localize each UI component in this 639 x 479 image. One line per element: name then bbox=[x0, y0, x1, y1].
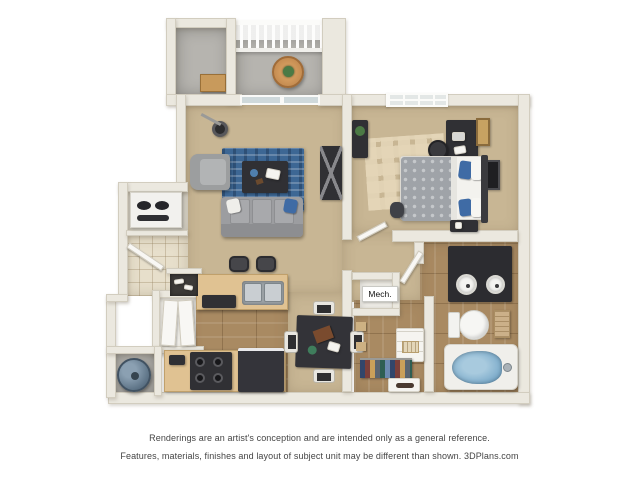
bar-stool bbox=[256, 256, 276, 272]
towel-basket bbox=[494, 310, 510, 338]
toilet bbox=[448, 310, 490, 340]
wall-bath-closet-divider bbox=[424, 296, 434, 392]
closet-hanging-clothes bbox=[360, 358, 412, 378]
dining-napkin bbox=[327, 341, 341, 353]
wall-balcony-right-column bbox=[322, 18, 346, 104]
pantry-door-panel bbox=[160, 300, 178, 347]
coffee-table-tray bbox=[265, 168, 281, 181]
wall-wing-left bbox=[118, 182, 128, 300]
sofa-pillow-blue bbox=[283, 198, 298, 214]
nightstand bbox=[450, 220, 478, 232]
wall-wing-top bbox=[118, 182, 188, 192]
wall-laundry-entry-divider bbox=[126, 230, 188, 236]
washer-dryer bbox=[130, 192, 182, 228]
bathtub bbox=[444, 344, 518, 390]
bathtub-basin bbox=[452, 351, 502, 384]
wall-living-left bbox=[176, 94, 186, 192]
closet-wall-box bbox=[356, 322, 366, 331]
closet-basket bbox=[402, 341, 419, 353]
closet-shelf-unit bbox=[396, 328, 424, 362]
wall-bottom-outer bbox=[108, 392, 530, 404]
sofa bbox=[221, 197, 303, 237]
kitchen-sink bbox=[242, 281, 284, 305]
washer-drum bbox=[155, 201, 169, 210]
toilet-bowl bbox=[459, 310, 489, 340]
coffee-table-decor bbox=[255, 178, 263, 185]
dishwasher bbox=[202, 295, 236, 308]
headboard bbox=[481, 155, 488, 223]
coffee-table-bowl bbox=[250, 169, 258, 177]
bathroom-vanity bbox=[448, 246, 512, 302]
bar-stool bbox=[229, 256, 249, 272]
dining-chair-seat bbox=[317, 373, 331, 381]
dining-chair-seat bbox=[288, 335, 296, 349]
disclaimer-line-2: Features, materials, finishes and layout… bbox=[0, 447, 639, 465]
tv-console bbox=[320, 146, 342, 200]
disclaimer-text: Renderings are an artist's conception an… bbox=[0, 429, 639, 465]
dining-chair bbox=[284, 331, 298, 353]
storage-box bbox=[200, 74, 226, 92]
wall-living-bedroom-partition bbox=[342, 94, 352, 240]
wall-water-heater-right bbox=[154, 346, 162, 396]
wall-storage-balcony-divider bbox=[226, 18, 236, 104]
nightstand-item bbox=[455, 222, 462, 229]
wall-right-outer bbox=[518, 94, 530, 404]
sliding-glass-door bbox=[240, 95, 320, 105]
dining-chair-seat bbox=[317, 305, 331, 313]
bathtub-faucet bbox=[503, 363, 512, 372]
bedroom-art-frame bbox=[486, 160, 500, 190]
refrigerator bbox=[238, 348, 284, 392]
sink-basin bbox=[244, 283, 262, 302]
floorplan-rendering: Mech. Renderings are an artist's concept… bbox=[0, 0, 639, 479]
stove-burner bbox=[195, 357, 205, 367]
dining-bowl bbox=[308, 345, 317, 354]
desk-laptop bbox=[452, 132, 465, 141]
disclaimer-line-1: Renderings are an artist's conception an… bbox=[0, 429, 639, 447]
bedroom-window bbox=[386, 93, 448, 107]
sliding-door-mullion bbox=[280, 97, 284, 103]
dining-chair bbox=[313, 301, 335, 315]
sink-drain bbox=[495, 284, 499, 288]
cork-board bbox=[476, 118, 490, 146]
sink-drain bbox=[466, 284, 470, 288]
coffee-table bbox=[242, 161, 288, 193]
stove-burner bbox=[213, 373, 223, 383]
nook-item bbox=[184, 284, 194, 290]
wall-pantry-left bbox=[152, 290, 160, 354]
wall-left-step bbox=[106, 294, 128, 302]
mech-closet-label: Mech. bbox=[362, 286, 398, 302]
bedroom-plant bbox=[355, 126, 365, 136]
sofa-cushion bbox=[252, 199, 272, 224]
water-heater-cap bbox=[131, 372, 139, 380]
entry-nook bbox=[170, 274, 198, 296]
stove-burner bbox=[213, 357, 223, 367]
bed-duvet bbox=[401, 157, 451, 221]
stove-burner bbox=[195, 373, 205, 383]
bed bbox=[400, 156, 484, 220]
sink-basin bbox=[264, 283, 282, 302]
balcony-railing bbox=[232, 20, 328, 52]
desk-papers bbox=[453, 145, 466, 155]
wall-storage-left bbox=[166, 18, 176, 104]
vanity-sink bbox=[486, 275, 505, 294]
accent-chair-seat bbox=[200, 159, 226, 185]
washer-drum bbox=[137, 201, 151, 210]
bed-sheet-fold bbox=[451, 157, 457, 221]
wall-storage-top bbox=[166, 18, 234, 28]
countertop-appliance bbox=[169, 355, 185, 365]
dining-table bbox=[295, 315, 353, 369]
closet-dresser bbox=[388, 378, 420, 392]
washer-controls bbox=[137, 215, 169, 221]
accent-chair bbox=[190, 154, 230, 190]
wall-mech-bottom bbox=[352, 308, 400, 316]
dining-chair bbox=[313, 369, 335, 383]
balcony-plant bbox=[283, 66, 294, 77]
pantry-door-panel bbox=[177, 300, 195, 347]
mech-closet-label-text: Mech. bbox=[368, 289, 391, 299]
laundry-hamper bbox=[390, 202, 404, 218]
closet-wall-box bbox=[356, 342, 366, 351]
closet-dresser-handle bbox=[396, 383, 414, 388]
range-stove bbox=[190, 352, 232, 390]
nook-item bbox=[174, 278, 185, 284]
water-heater bbox=[117, 358, 151, 392]
wall-living-top-right bbox=[318, 94, 388, 106]
sofa-back bbox=[221, 224, 303, 237]
peninsula-counter bbox=[196, 274, 288, 310]
sofa-pillow-white bbox=[226, 198, 242, 214]
vanity-sink bbox=[456, 274, 477, 295]
